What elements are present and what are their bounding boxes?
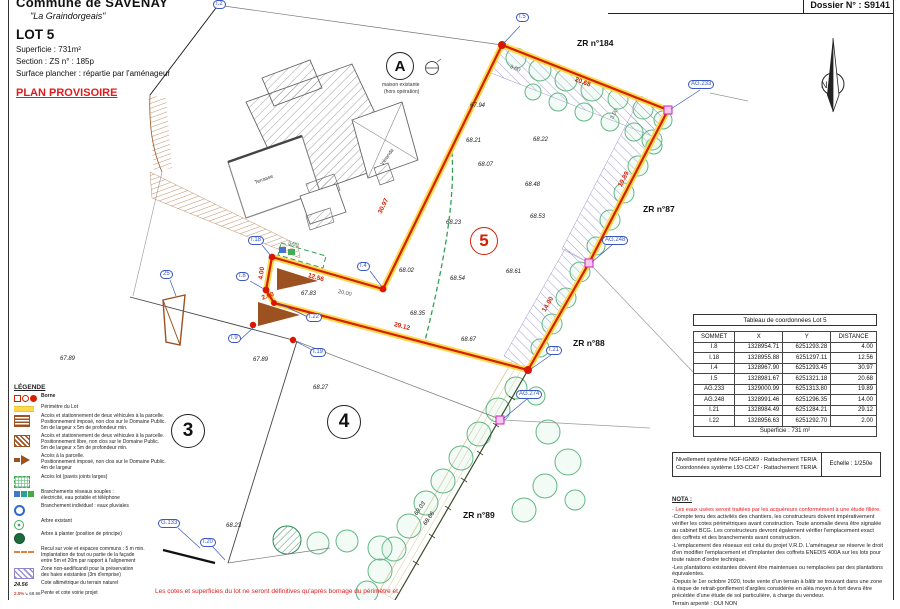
acc-lot-icon: [14, 475, 41, 488]
legend: LÉGENDE BornePérimètre du LotAccès et st…: [14, 384, 166, 599]
plan-provisoire-stamp: PLAN PROVISOIRE: [16, 87, 336, 99]
legend-item: Accès lot (pavés joints larges): [14, 475, 166, 488]
legend-item: Branchement individuel : eaux pluviales: [14, 504, 166, 516]
table-cell: 20.68: [831, 374, 877, 385]
dossier-divider: [803, 0, 804, 13]
dossier-underline: [608, 13, 893, 14]
nota-paragraphs: - Les eaux usées seront traitées par les…: [672, 507, 884, 608]
legend-item: Zone non-aedificandi pour la préservatio…: [14, 567, 166, 579]
svg-text:N: N: [821, 80, 828, 90]
legend-item: Accès et stationnement de deux véhicules…: [14, 414, 166, 432]
acc-imp-icon: [14, 414, 41, 427]
legend-item-text: Accès et stationnement de deux véhicules…: [41, 414, 166, 432]
nota-paragraph: -Les plantations existantes doivent être…: [672, 565, 884, 579]
legend-item: Accès et stationnement de deux véhicules…: [14, 434, 166, 452]
legend-item: Recul sur voie et espaces communs : 5 m …: [14, 547, 166, 565]
table-cell: I.5: [694, 374, 735, 385]
superficie: Superficie : 731m²: [16, 45, 336, 54]
legend-item-text: Borne: [41, 394, 55, 400]
table-cell: I.22: [694, 416, 735, 427]
borne-icon: [14, 394, 41, 402]
scale-label: Echelle : 1/250e: [821, 453, 880, 476]
legend-items: BornePérimètre du LotAccès et stationnem…: [14, 394, 166, 597]
table-header: DISTANCE: [831, 332, 877, 343]
coordinate-table-title: Tableau de coordonnées Lot 5: [693, 314, 877, 326]
legend-item: Arbre existant: [14, 519, 166, 530]
legend-item-text: Pente et cote voirie projet: [41, 591, 98, 597]
zone-non-aedificandi-hatch: [491, 45, 668, 370]
survey-plan-sheet: { "header": { "commune": "Commune de SAV…: [0, 0, 900, 600]
table-cell: 1328981.67: [735, 374, 783, 385]
reference-info-box: Nivellement système NGF-IGN69 - Rattache…: [672, 452, 881, 477]
table-cell: 1329000.99: [735, 384, 783, 395]
commune-title: Commune de SAVENAY: [16, 0, 336, 10]
table-cell: 1328954.71: [735, 342, 783, 353]
legend-item: 24.56Cote altimétrique du terrain nature…: [14, 581, 166, 588]
legend-item-text: Accès et stationnement de deux véhicules…: [41, 434, 164, 452]
eaux-pluviales-icon: [14, 504, 41, 516]
title-block: Commune de SAVENAY "La Graindorgeais" LO…: [16, 0, 336, 99]
table-cell: 6251292.70: [783, 416, 831, 427]
coordinate-system: Coordonnées système L93-CC47 - Rattachem…: [676, 464, 818, 472]
table-cell: 1328956.63: [735, 416, 783, 427]
table-cell: 30.97: [831, 363, 877, 374]
red-footnote: Les cotes et superficies du lot ne seron…: [155, 588, 398, 595]
well-icon: [426, 59, 442, 75]
table-cell: 6251313.80: [783, 384, 831, 395]
legend-item: Périmètre du Lot: [14, 405, 166, 412]
legend-item-text: Arbre à planter (position de principe): [41, 532, 122, 538]
table-cell: 12.56: [831, 353, 877, 364]
legend-item: Borne: [14, 394, 166, 402]
surface-plancher: Surface plancher : répartie par l'aménag…: [16, 69, 336, 78]
legend-item-text: Branchement individuel : eaux pluviales: [41, 504, 129, 510]
sheet-border-left: [8, 0, 9, 600]
table-cell: I.8: [694, 342, 735, 353]
table-cell: 1328967.90: [735, 363, 783, 374]
table-row: I.51328981.676251321.1820.68: [694, 374, 877, 385]
table-row: I.221328956.636251292.702.00: [694, 416, 877, 427]
legend-item: Arbre à planter (position de principe): [14, 532, 166, 544]
nota-paragraph: -Compte tenu des activités des chantiers…: [672, 514, 884, 542]
table-row: AG.2331329000.996251313.8019.89: [694, 384, 877, 395]
arbre-planter-icon: [14, 532, 41, 544]
table-header: X: [735, 332, 783, 343]
dossier-number: Dossier N° : S9141: [810, 0, 890, 10]
table-cell: I.18: [694, 353, 735, 364]
geodetic-references: Nivellement système NGF-IGN69 - Rattache…: [673, 453, 821, 476]
table-cell: I.4: [694, 363, 735, 374]
legend-item: Accès à la parcelle.Positionnement impos…: [14, 454, 166, 472]
nota-paragraph: - Les eaux usées seront traitées par les…: [672, 507, 884, 514]
table-cell: 6251296.35: [783, 395, 831, 406]
legend-item-text: Zone non-aedificandi pour la préservatio…: [41, 567, 133, 579]
section: Section : ZS n° : 185p: [16, 57, 336, 66]
acc-fleche-icon: [14, 454, 41, 465]
table-header: SOMMET: [694, 332, 735, 343]
legend-item-text: Arbre existant: [41, 519, 72, 525]
arbre-existant-icon: [14, 519, 41, 530]
legend-item-text: Accès lot (pavés joints larges): [41, 475, 107, 481]
nota-block: NOTA : - Les eaux usées seront traitées …: [672, 497, 884, 609]
nota-paragraph: Terrain arpenté : OUI NON: [672, 601, 884, 608]
table-cell: 29.12: [831, 405, 877, 416]
recul-icon: [14, 547, 41, 553]
legend-item-text: Branchements réseaux souples :électricit…: [41, 490, 120, 502]
table-cell: AG.248: [694, 395, 735, 406]
table-cell: 1328955.88: [735, 353, 783, 364]
coordinate-table-grid: SOMMETXYDISTANCE I.81328954.716251293.28…: [693, 331, 877, 437]
hatched-bush: [273, 526, 301, 554]
table-cell: 6251297.11: [783, 353, 831, 364]
cote-tn-icon: 24.56: [14, 581, 41, 588]
legend-item-text: Accès à la parcelle.Positionnement impos…: [41, 454, 166, 472]
coordinate-table: Tableau de coordonnées Lot 5 SOMMETXYDIS…: [693, 314, 877, 437]
legend-item-text: Recul sur voie et espaces communs : 5 m …: [41, 547, 145, 565]
nota-paragraph: -Depuis le 1er octobre 2020, toute vente…: [672, 579, 884, 600]
table-cell: 6251321.18: [783, 374, 831, 385]
table-cell: AG.233: [694, 384, 735, 395]
table-cell: I.21: [694, 405, 735, 416]
access-trapezoid: [163, 295, 185, 345]
table-row: AG.2481328991.466251296.3514.00: [694, 395, 877, 406]
table-row: I.81328954.716251293.284.00: [694, 342, 877, 353]
perimetre-icon: [14, 405, 41, 412]
north-arrow-icon: N: [821, 38, 844, 112]
branchements-icon: [14, 490, 41, 497]
table-cell: 2.00: [831, 416, 877, 427]
nota-paragraph: -L'emplacement des réseaux est celui du …: [672, 543, 884, 564]
zone-na-icon: [14, 567, 41, 579]
legend-item-text: Cote altimétrique du terrain naturel: [41, 581, 118, 587]
acc-lib-icon: [14, 434, 41, 447]
table-cell: 1328991.46: [735, 395, 783, 406]
sheet-border-right: [893, 0, 894, 600]
table-row: I.41328967.906251293.4530.97: [694, 363, 877, 374]
table-header: Y: [783, 332, 831, 343]
lot-title: LOT 5: [16, 27, 336, 42]
table-cell: 1328984.49: [735, 405, 783, 416]
table-cell: 19.89: [831, 384, 877, 395]
legend-title: LÉGENDE: [14, 384, 166, 391]
table-cell: 14.00: [831, 395, 877, 406]
table-row: I.211328984.496251284.2129.12: [694, 405, 877, 416]
legend-item: Branchements réseaux souples :électricit…: [14, 490, 166, 502]
levelling-system: Nivellement système NGF-IGN69 - Rattache…: [676, 456, 818, 464]
table-row: I.181328955.886251297.1112.56: [694, 353, 877, 364]
table-cell: 6251293.45: [783, 363, 831, 374]
lieu-dit: "La Graindorgeais": [30, 11, 336, 21]
legend-item-text: Périmètre du Lot: [41, 405, 78, 411]
pente-icon: 2.0%↘ 68.96: [14, 591, 41, 597]
table-footer: Superficie : 731 m²: [694, 426, 877, 437]
table-cell: 4.00: [831, 342, 877, 353]
table-cell: 6251293.28: [783, 342, 831, 353]
nota-title: NOTA :: [672, 497, 884, 505]
legend-item: 2.0%↘ 68.96Pente et cote voirie projet: [14, 591, 166, 597]
table-cell: 6251284.21: [783, 405, 831, 416]
